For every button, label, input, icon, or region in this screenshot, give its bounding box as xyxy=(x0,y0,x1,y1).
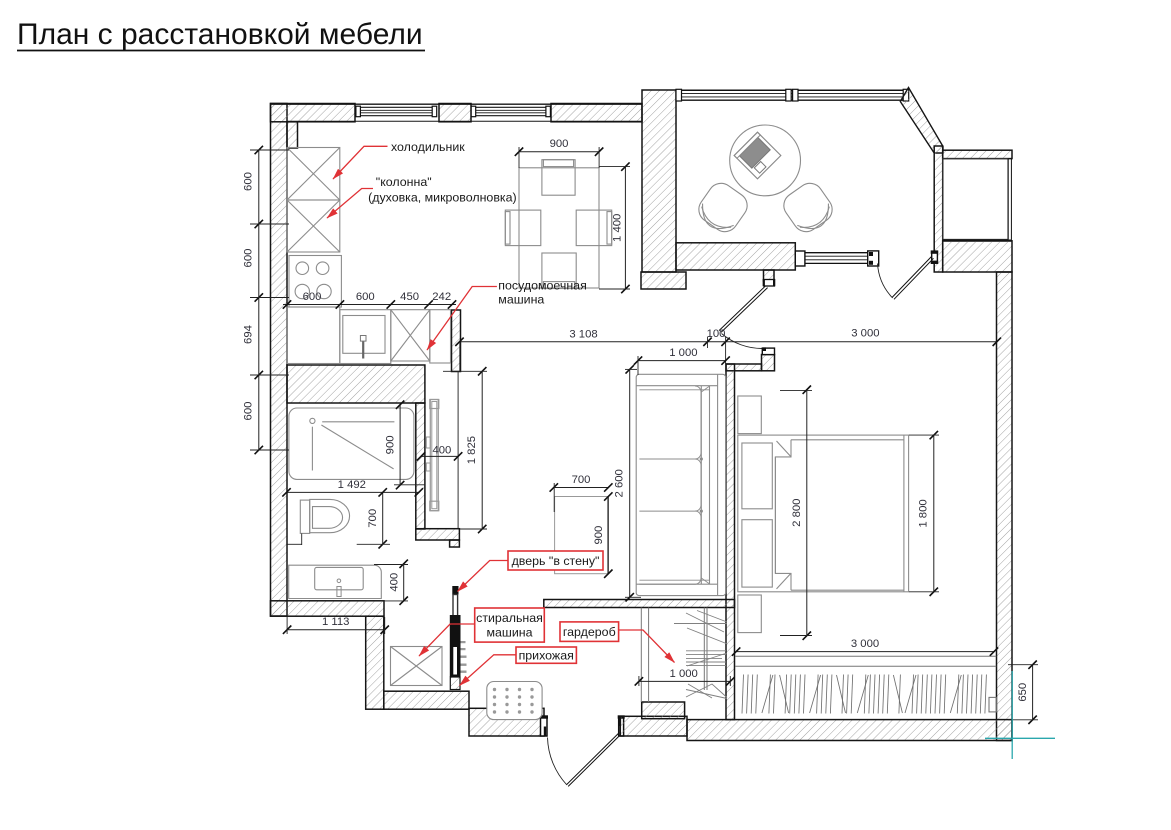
svg-text:400: 400 xyxy=(389,573,401,592)
svg-text:1 825: 1 825 xyxy=(466,436,478,464)
svg-text:600: 600 xyxy=(243,249,255,268)
svg-text:гардероб: гардероб xyxy=(563,625,616,639)
svg-text:(духовка, микроволновка): (духовка, микроволновка) xyxy=(368,191,517,205)
svg-text:стиральная: стиральная xyxy=(476,611,543,625)
svg-text:посудомоечная: посудомоечная xyxy=(498,279,587,293)
svg-text:3 000: 3 000 xyxy=(851,638,879,650)
svg-text:холодильник: холодильник xyxy=(391,140,465,154)
svg-text:2 800: 2 800 xyxy=(791,499,803,527)
svg-text:600: 600 xyxy=(303,291,322,303)
svg-text:"колонна": "колонна" xyxy=(376,175,432,189)
svg-text:2 600: 2 600 xyxy=(614,469,626,497)
svg-text:400: 400 xyxy=(432,445,451,457)
svg-text:3 000: 3 000 xyxy=(851,327,879,339)
svg-text:машина: машина xyxy=(486,626,532,640)
svg-text:242: 242 xyxy=(432,291,451,303)
svg-text:450: 450 xyxy=(400,291,419,303)
svg-text:1 800: 1 800 xyxy=(918,499,930,527)
svg-text:дверь "в стену": дверь "в стену" xyxy=(512,554,600,568)
svg-text:План с расстановкой мебели: План с расстановкой мебели xyxy=(17,18,423,51)
svg-text:1 400: 1 400 xyxy=(611,214,623,242)
svg-text:900: 900 xyxy=(550,138,569,150)
svg-text:1 113: 1 113 xyxy=(322,616,349,628)
svg-text:1 492: 1 492 xyxy=(338,479,366,491)
svg-text:900: 900 xyxy=(384,435,396,454)
svg-text:600: 600 xyxy=(243,172,255,191)
svg-text:900: 900 xyxy=(593,526,605,545)
svg-text:машина: машина xyxy=(498,293,544,307)
svg-text:700: 700 xyxy=(367,509,379,528)
svg-text:1 000: 1 000 xyxy=(670,668,698,680)
svg-text:1 000: 1 000 xyxy=(669,347,697,359)
svg-text:600: 600 xyxy=(243,402,255,421)
svg-text:700: 700 xyxy=(572,474,591,486)
svg-text:694: 694 xyxy=(243,325,255,344)
svg-text:3 108: 3 108 xyxy=(569,328,597,340)
svg-text:100: 100 xyxy=(707,328,726,340)
svg-text:600: 600 xyxy=(356,291,375,303)
svg-text:прихожая: прихожая xyxy=(519,648,574,662)
svg-text:650: 650 xyxy=(1017,683,1029,702)
